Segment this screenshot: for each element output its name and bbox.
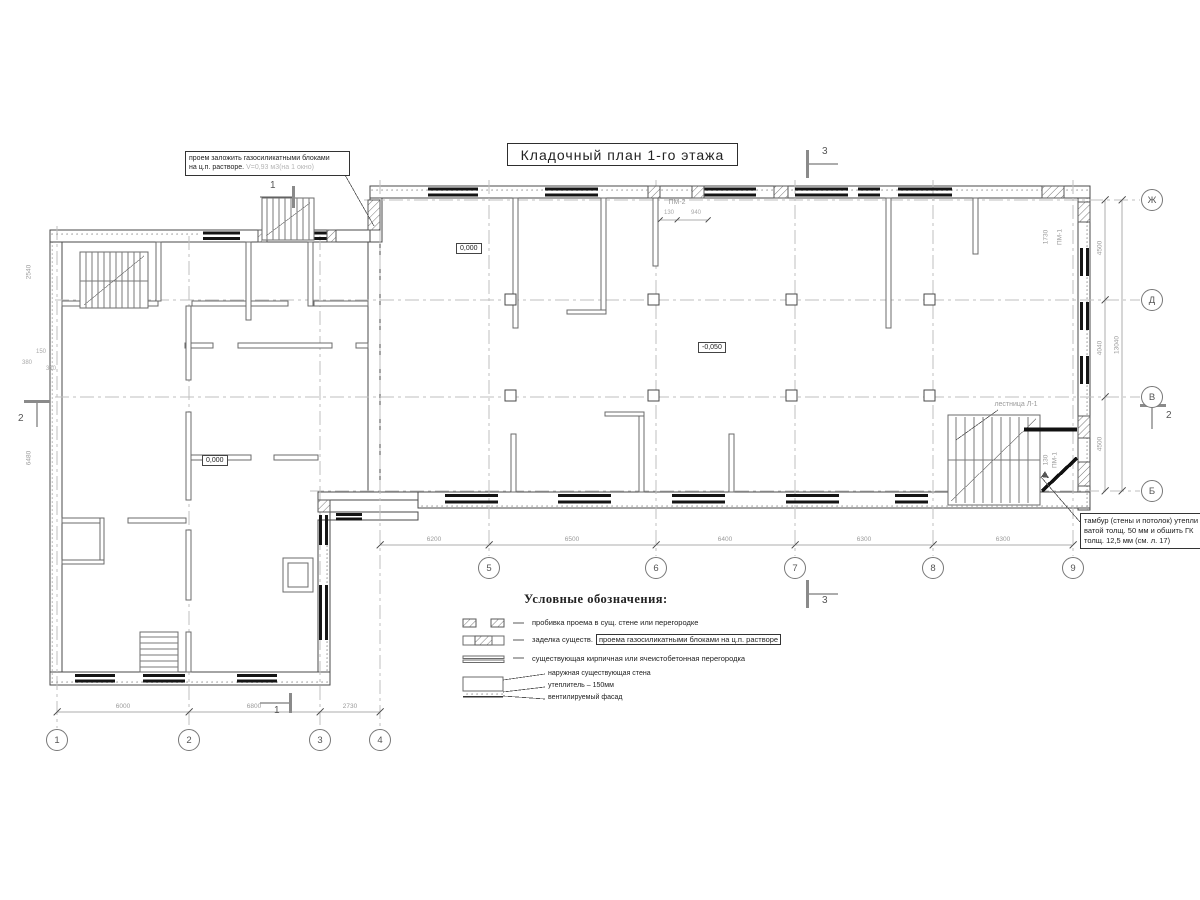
elevation-entry: 0,000 [456, 243, 482, 254]
tambour-callout-line3: толщ. 12,5 мм (см. л. 17) [1084, 536, 1200, 546]
pm1-mark: ПМ-1 [1057, 229, 1064, 245]
drawing-title: Кладочный план 1-го этажа [507, 143, 738, 166]
window-openings [75, 188, 1089, 683]
grid-bubble-row-zh: Ж [1141, 189, 1163, 211]
legend-item-1: пробивка проема в сущ. стене или перегор… [532, 618, 698, 627]
floor-plan-linework [0, 0, 1200, 900]
dim-6480: 6480 [26, 451, 33, 465]
grid-bubble-col-6: 6 [645, 557, 667, 579]
legend-wall-label-3: вентилируемый фасад [548, 694, 622, 701]
dim-380: 380 [22, 360, 32, 366]
section-3-top-label: 3 [822, 146, 828, 157]
pm1-stair-mark: ПМ-1 [1052, 452, 1059, 468]
dim-6300b: 6300 [996, 536, 1010, 543]
legend-wall-label-2: утеплитель – 150мм [548, 682, 614, 689]
grid-bubble-row-d: Д [1141, 289, 1163, 311]
pm2-mark: ПМ-2 [668, 199, 685, 206]
section-1-top-label: 1 [270, 180, 276, 191]
tambour-callout-line1: тамбур (стены и потолок) утепли [1084, 516, 1200, 526]
opening-callout: проем заложить газосиликатными блоками н… [185, 151, 350, 176]
legend-item-2-prefix: заделка существ. [532, 635, 593, 644]
section-3-bottom-label: 3 [822, 595, 828, 606]
tambour-callout-line2: ватой толщ. 50 мм и обшить ГК [1084, 526, 1200, 536]
dim-310: 310 [46, 366, 56, 372]
section-2-left-label: 2 [18, 413, 24, 424]
dim-130: 130 [664, 210, 674, 216]
grid-bubble-col-3: 3 [309, 729, 331, 751]
legend-item-3: существующая кирпичная или ячеистобетонн… [532, 654, 745, 663]
dim-4040: 4040 [1097, 341, 1104, 355]
grid-bubble-col-9: 9 [1062, 557, 1084, 579]
stair-label: лестница Л-1 [994, 401, 1037, 408]
grid-bubble-col-8: 8 [922, 557, 944, 579]
elevation-left-wing: 0,000 [202, 455, 228, 466]
dim-6000: 6000 [116, 703, 130, 710]
tambour-callout: тамбур (стены и потолок) утепли ватой то… [1080, 513, 1200, 549]
opening-callout-line2: на ц.п. растворе. [189, 164, 244, 171]
legend-item-2: заделка существ. проема газосиликатными … [532, 634, 781, 645]
dim-2540: 2540 [26, 265, 33, 279]
dim-4500a: 4500 [1097, 241, 1104, 255]
grid-bubble-col-2: 2 [178, 729, 200, 751]
dim-13040: 13040 [1114, 336, 1121, 354]
dim-6500: 6500 [565, 536, 579, 543]
dim-2730: 2730 [343, 703, 357, 710]
dim-150: 150 [36, 349, 46, 355]
dim-6400: 6400 [718, 536, 732, 543]
opening-callout-line1: проем заложить газосиликатными блоками [189, 154, 346, 163]
grid-bubble-row-b: Б [1141, 480, 1163, 502]
section-1-bottom-label: 1 [274, 705, 280, 716]
exterior-walls [50, 186, 1090, 685]
dim-6300a: 6300 [857, 536, 871, 543]
dim-6800: 6800 [247, 703, 261, 710]
section-2-right-label: 2 [1166, 410, 1172, 421]
grid-bubble-col-7: 7 [784, 557, 806, 579]
grid-bubble-col-5: 5 [478, 557, 500, 579]
dim-6200: 6200 [427, 536, 441, 543]
grid-bubble-col-4: 4 [369, 729, 391, 751]
dim-940: 940 [691, 210, 701, 216]
dim-130b: 130 [1043, 455, 1050, 466]
grid-bubble-row-v: В [1141, 386, 1163, 408]
legend-item-2-boxed: проема газосиликатными блоками на ц.п. р… [596, 634, 781, 645]
interior-partitions [62, 198, 978, 672]
dim-4500b: 4500 [1097, 437, 1104, 451]
elevation-hall: -0,050 [698, 342, 726, 353]
legend-wall-label-1: наружная существующая стена [548, 670, 651, 677]
blueprint-page: Кладочный план 1-го этажа проем заложить… [0, 0, 1200, 900]
opening-callout-note: V=0,93 м3(на 1 окно) [246, 164, 314, 171]
legend-title: Условные обозначения: [524, 592, 668, 607]
dim-1730: 1730 [1043, 230, 1050, 244]
grid-bubble-col-1: 1 [46, 729, 68, 751]
